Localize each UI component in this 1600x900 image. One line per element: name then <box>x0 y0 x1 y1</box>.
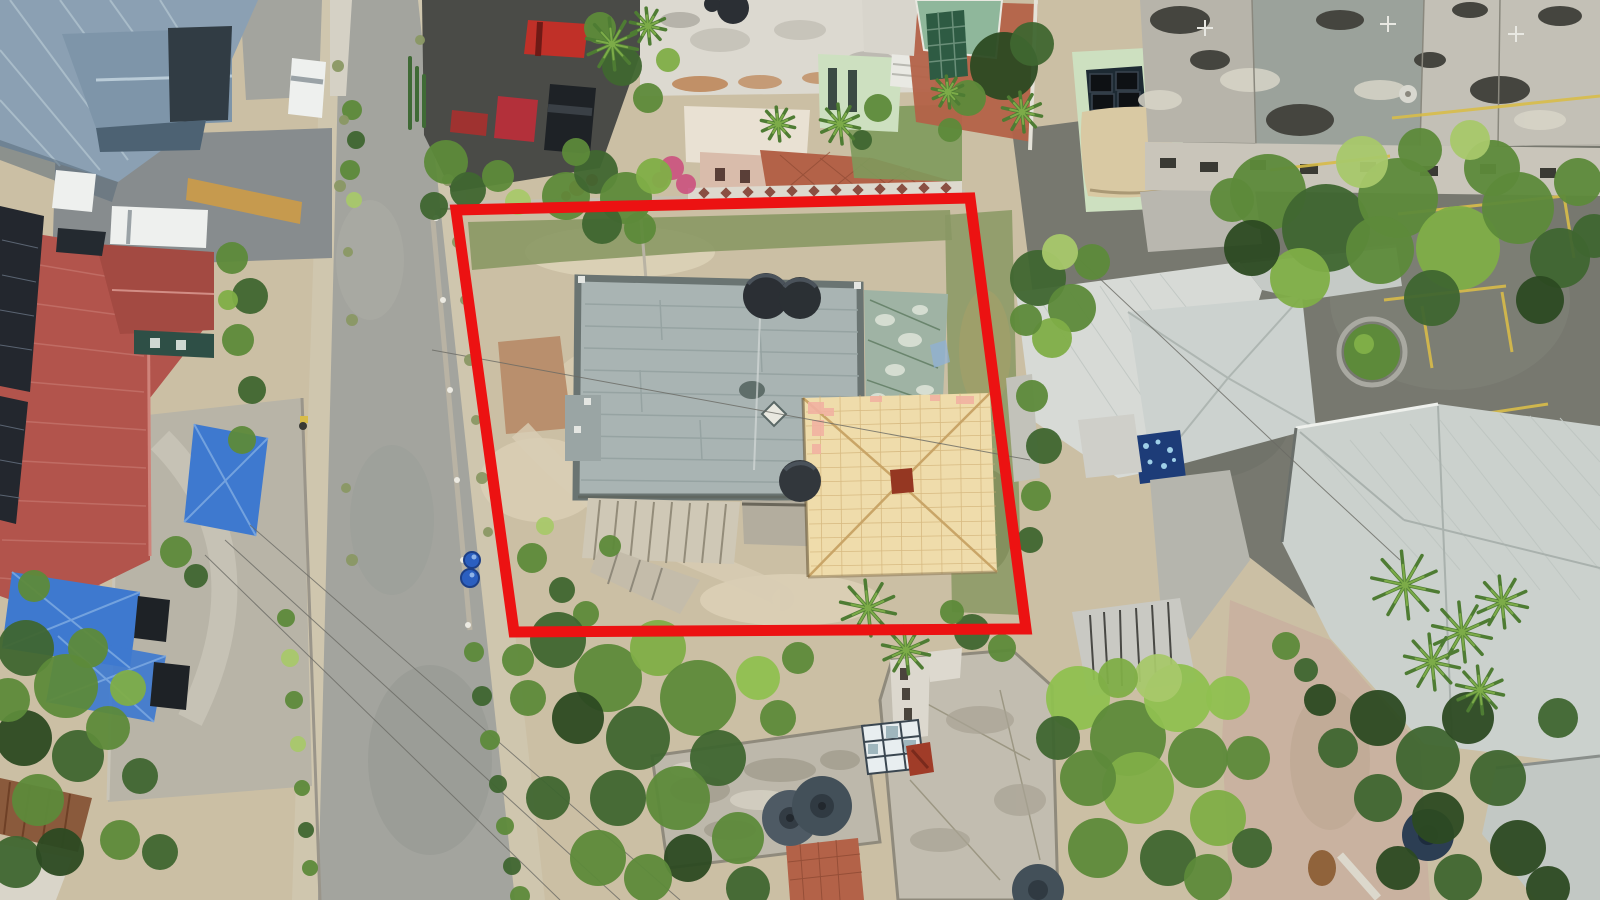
chimney <box>890 468 914 494</box>
aerial-photo <box>0 0 1600 900</box>
dumpster <box>1134 430 1186 484</box>
red-dirt-patch <box>498 336 572 434</box>
planter-bush <box>1344 324 1400 380</box>
house-wall <box>134 330 214 358</box>
tile-courtyard <box>786 838 864 900</box>
orange-roof-house <box>803 393 997 577</box>
car-under-tarp <box>134 596 170 642</box>
dark-roof-section <box>168 26 232 122</box>
